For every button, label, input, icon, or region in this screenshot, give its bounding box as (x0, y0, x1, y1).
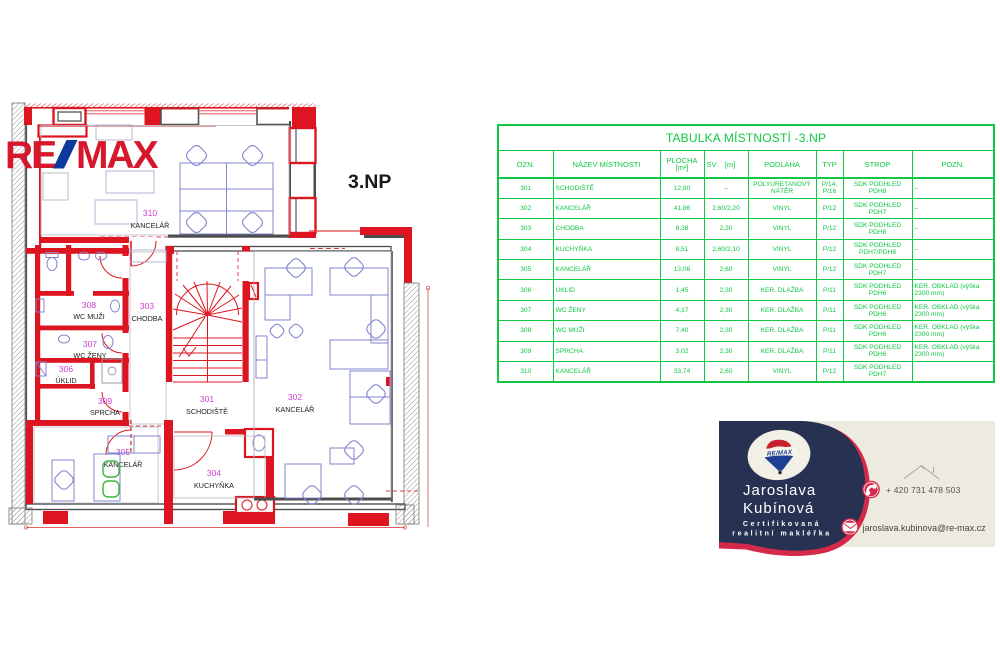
svg-text:303: 303 (140, 301, 154, 311)
svg-text:KANCELÁŘ: KANCELÁŘ (131, 221, 170, 230)
svg-text:301: 301 (200, 394, 214, 404)
svg-text:305: 305 (116, 447, 130, 457)
svg-text:jaroslava.kubinova@re-max.cz: jaroslava.kubinova@re-max.cz (862, 523, 987, 533)
svg-text:KANCELÁŘ: KANCELÁŘ (276, 405, 315, 414)
svg-text:ÚKLID: ÚKLID (55, 376, 76, 385)
svg-text:+ 420 731 478 503: + 420 731 478 503 (886, 485, 961, 495)
svg-text:307: 307 (83, 339, 97, 349)
svg-text:Certifikovaná: Certifikovaná (743, 521, 821, 528)
svg-text:310: 310 (143, 208, 157, 218)
svg-text:302: 302 (288, 392, 302, 402)
svg-text:KUCHYŇKA: KUCHYŇKA (194, 481, 234, 490)
svg-text:306: 306 (59, 364, 73, 374)
svg-text:Kubínová: Kubínová (743, 500, 814, 517)
svg-text:CHODBA: CHODBA (132, 314, 163, 323)
svg-text:309: 309 (98, 396, 112, 406)
svg-text:SCHODIŠTĚ: SCHODIŠTĚ (186, 407, 228, 416)
svg-text:304: 304 (207, 468, 221, 478)
svg-text:SPRCHA: SPRCHA (90, 408, 120, 417)
svg-text:308: 308 (82, 300, 96, 310)
svg-text:RE: RE (5, 134, 56, 177)
svg-text:realitní makléřka: realitní makléřka (732, 531, 831, 538)
svg-text:WC MUŽI: WC MUŽI (73, 312, 105, 321)
svg-text:Jaroslava: Jaroslava (743, 482, 816, 499)
svg-text:MAX: MAX (76, 134, 159, 177)
svg-text:3.NP: 3.NP (348, 171, 391, 193)
